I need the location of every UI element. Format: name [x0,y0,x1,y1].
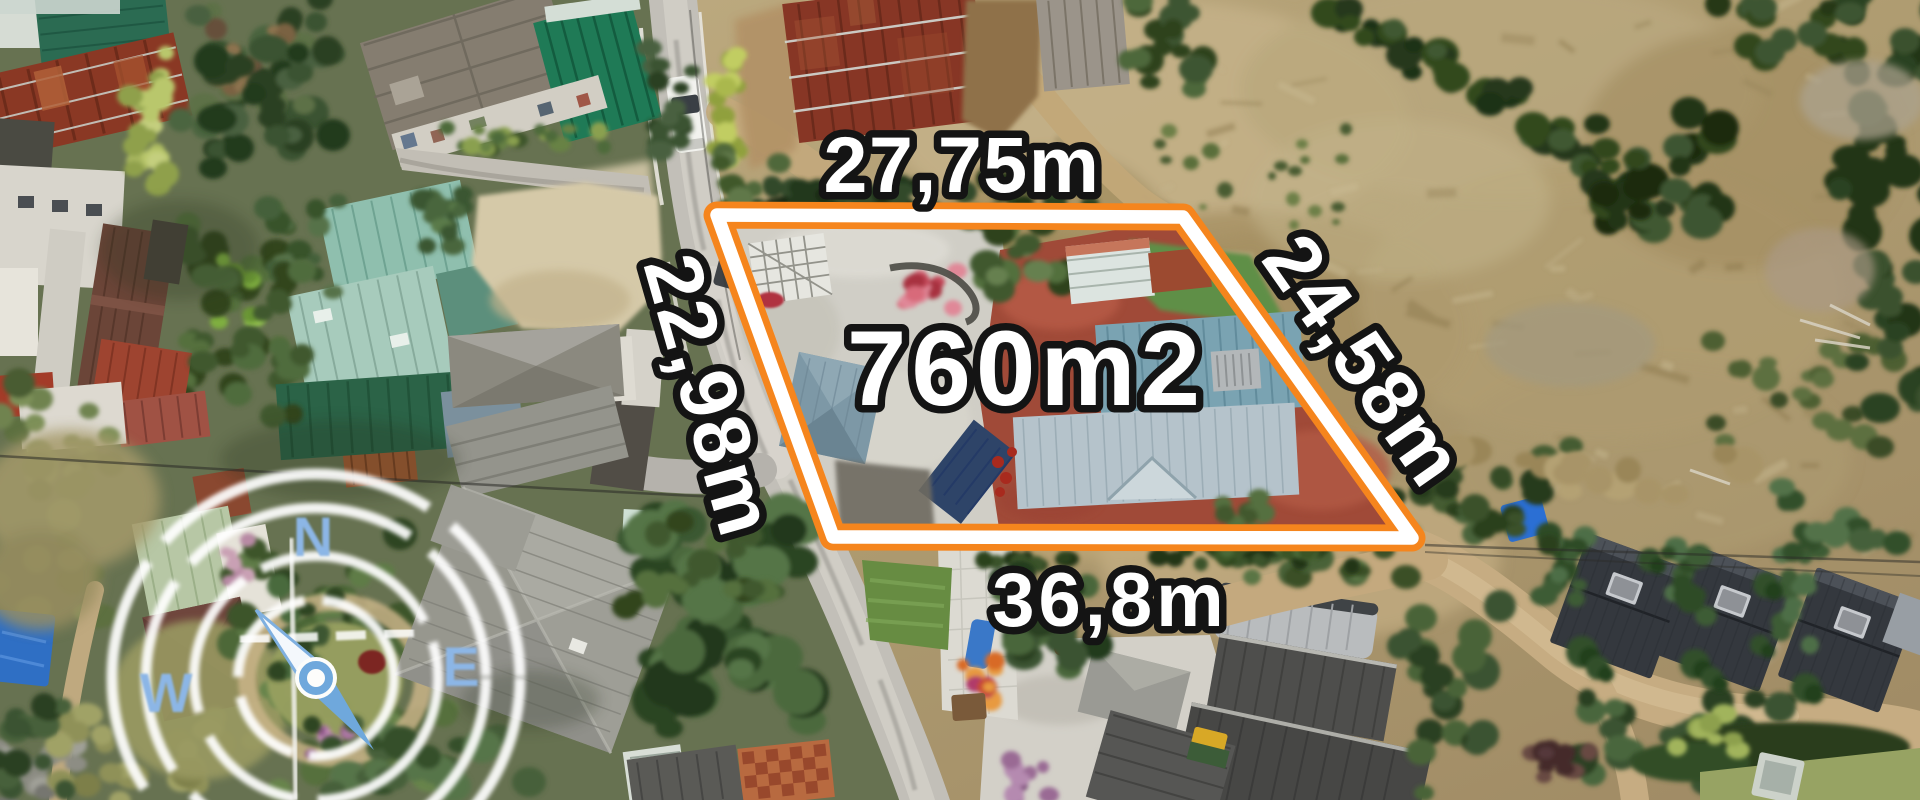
svg-text:760m2: 760m2 [847,308,1205,428]
svg-text:E: E [442,635,479,698]
svg-text:36,8m: 36,8m [992,558,1228,643]
svg-text:W: W [140,661,193,724]
svg-text:27,75m: 27,75m [824,120,1101,209]
svg-text:N: N [293,505,333,568]
